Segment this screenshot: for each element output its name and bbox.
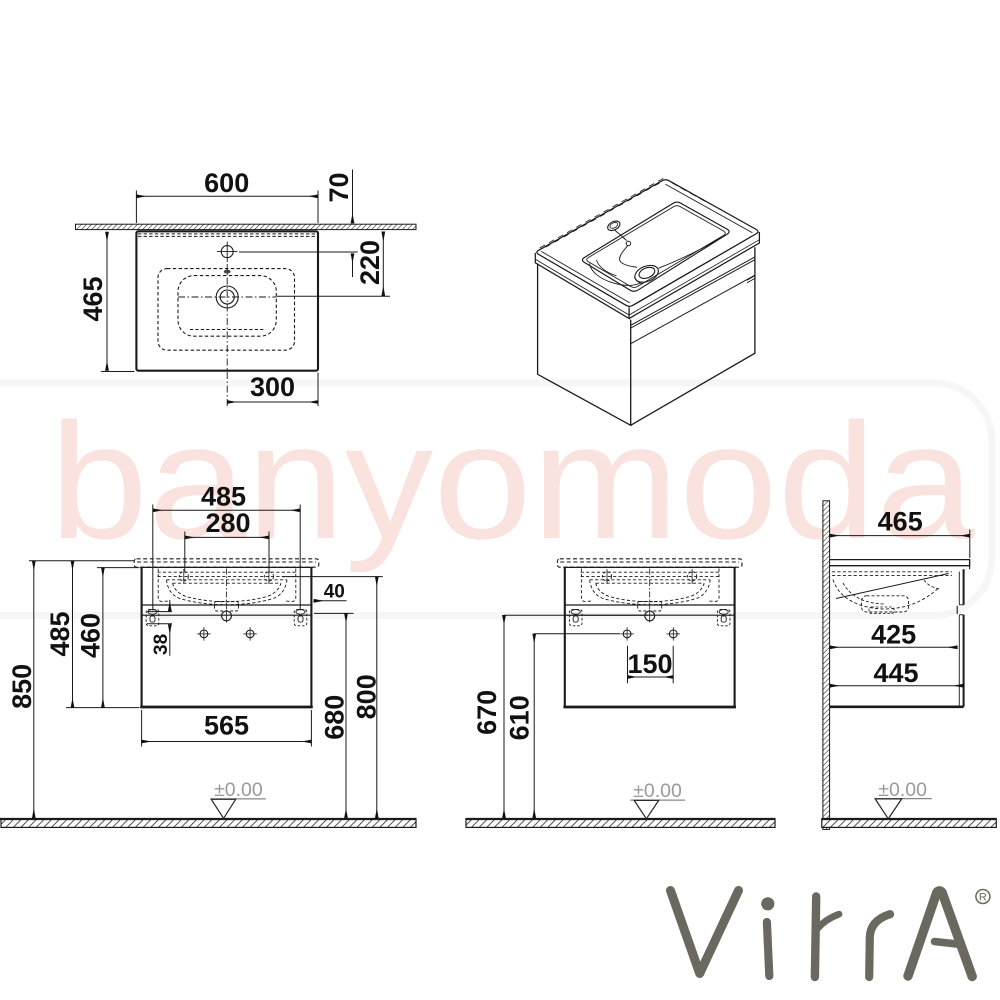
svg-text:600: 600 bbox=[204, 168, 249, 198]
svg-text:banyomoda: banyomoda bbox=[50, 389, 975, 573]
svg-text:220: 220 bbox=[355, 240, 385, 285]
svg-text:800: 800 bbox=[352, 674, 382, 719]
svg-text:425: 425 bbox=[871, 620, 916, 650]
svg-text:485: 485 bbox=[201, 481, 246, 511]
svg-text:40: 40 bbox=[324, 582, 345, 603]
svg-text:445: 445 bbox=[873, 658, 918, 688]
svg-text:±0.00: ±0.00 bbox=[214, 779, 263, 801]
svg-text:38: 38 bbox=[151, 634, 172, 655]
svg-text:485: 485 bbox=[45, 611, 75, 656]
svg-text:150: 150 bbox=[627, 649, 672, 679]
svg-text:465: 465 bbox=[878, 507, 923, 537]
svg-text:±0.00: ±0.00 bbox=[633, 780, 682, 802]
svg-text:850: 850 bbox=[7, 664, 37, 709]
svg-text:460: 460 bbox=[76, 613, 106, 658]
svg-text:±0.00: ±0.00 bbox=[878, 779, 927, 801]
svg-text:670: 670 bbox=[472, 690, 502, 735]
svg-text:280: 280 bbox=[205, 508, 250, 538]
svg-text:610: 610 bbox=[505, 695, 535, 740]
svg-text:R: R bbox=[979, 892, 987, 904]
svg-text:300: 300 bbox=[250, 372, 295, 402]
svg-text:465: 465 bbox=[78, 276, 108, 321]
svg-text:70: 70 bbox=[324, 172, 354, 202]
svg-text:565: 565 bbox=[204, 711, 249, 741]
svg-text:680: 680 bbox=[319, 695, 349, 740]
